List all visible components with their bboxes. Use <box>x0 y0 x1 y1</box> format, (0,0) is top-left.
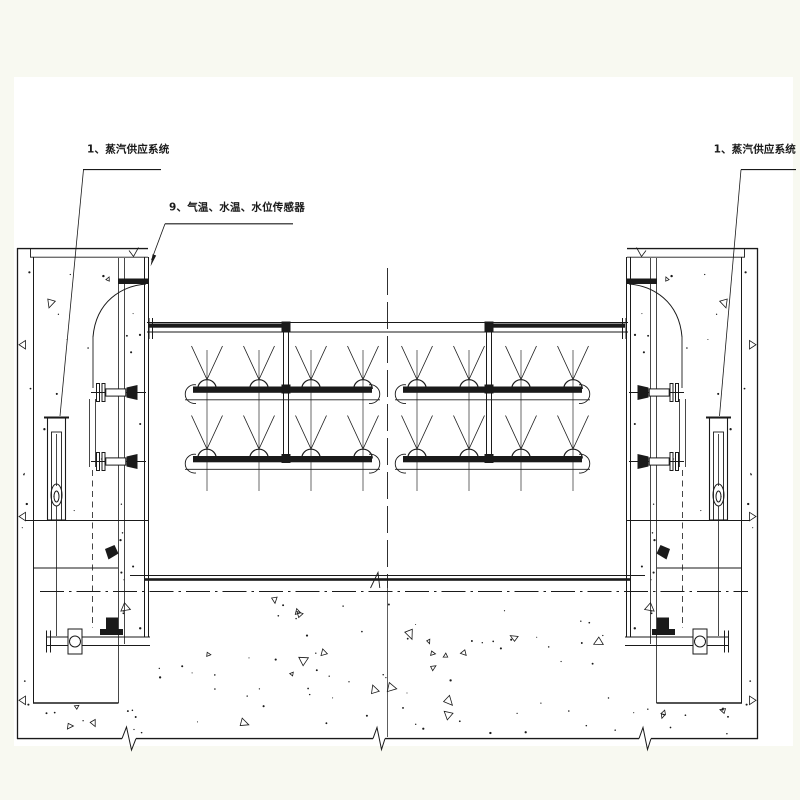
label-sensors: 9、气温、水温、水位传感器 <box>169 201 305 214</box>
drawing-page: 1、蒸汽供应系统 9、气温、水温、水位传感器 1、蒸汽供应系统 <box>0 0 800 800</box>
steam-header-right <box>492 324 625 328</box>
steam-header-left <box>148 324 283 328</box>
label-steam-supply-left: 1、蒸汽供应系统 <box>87 143 170 156</box>
gate-rail-bar <box>118 279 148 285</box>
valve-body <box>68 629 82 654</box>
pipe-tee-fitting <box>106 618 118 630</box>
engineering-section-drawing: 1、蒸汽供应系统 9、气温、水温、水位传感器 1、蒸汽供应系统 <box>0 0 800 800</box>
label-steam-supply-right: 1、蒸汽供应系统 <box>714 143 797 156</box>
